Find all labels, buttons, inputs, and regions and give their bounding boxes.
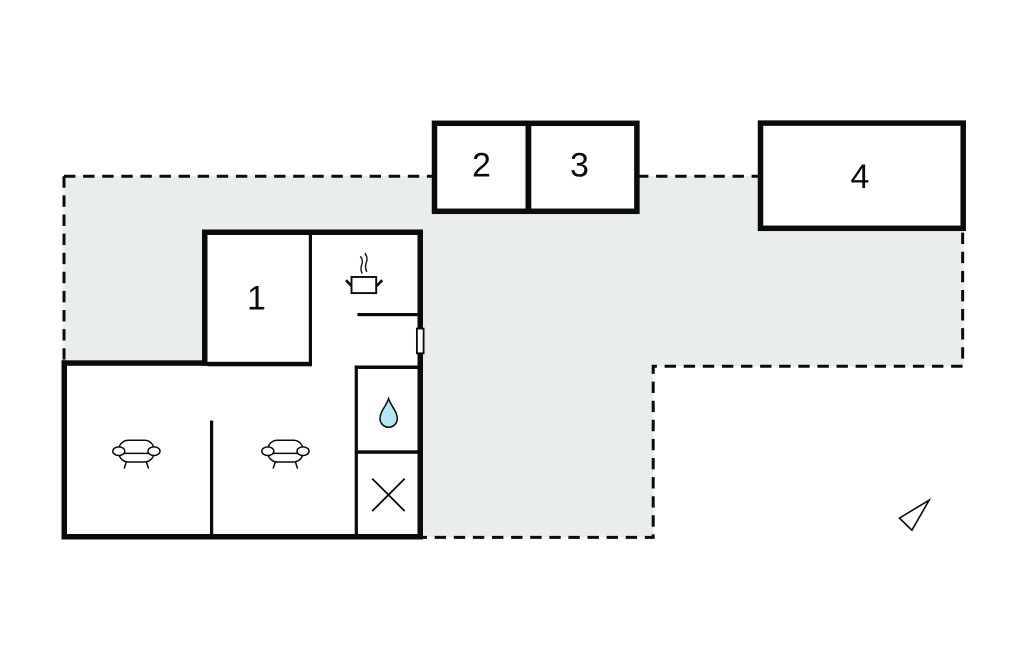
svg-text:3: 3 (570, 147, 589, 185)
svg-text:4: 4 (851, 158, 870, 196)
svg-text:2: 2 (472, 147, 491, 185)
svg-text:1: 1 (247, 280, 266, 318)
